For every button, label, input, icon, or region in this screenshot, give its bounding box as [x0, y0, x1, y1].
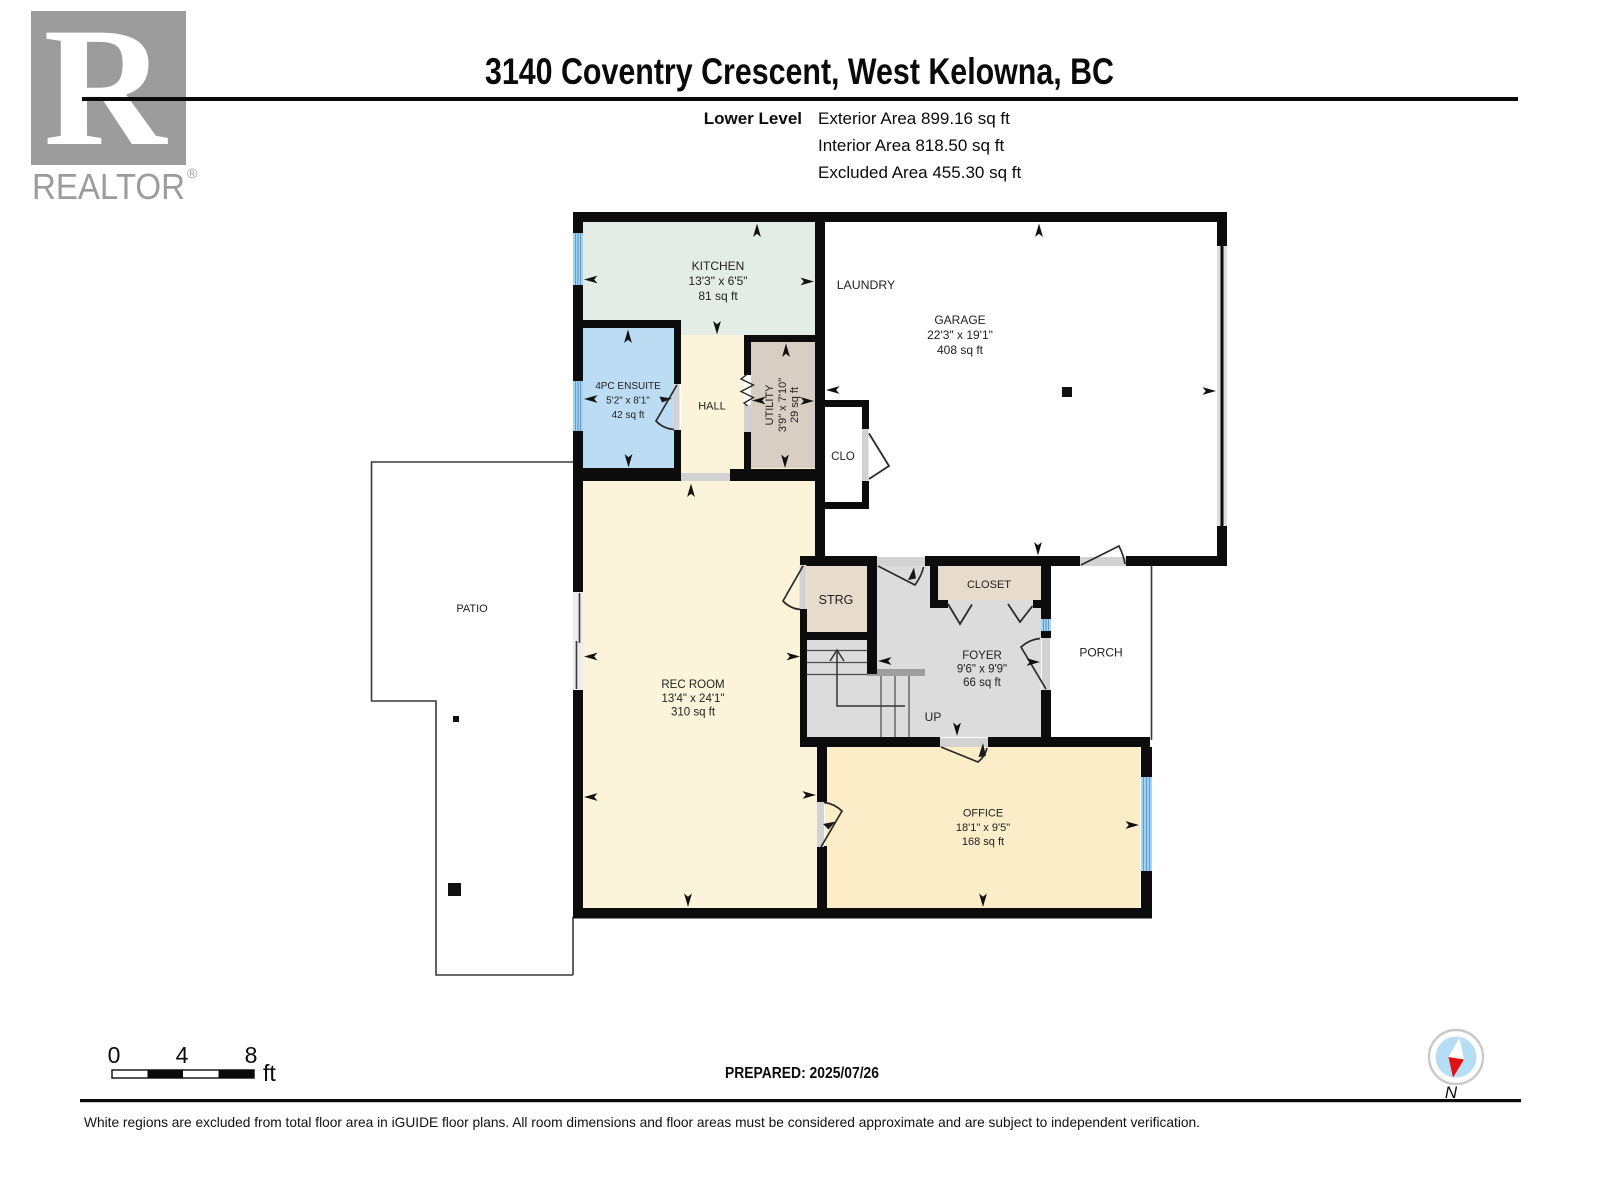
svg-text:PORCH: PORCH — [1079, 646, 1122, 660]
svg-text:HALL: HALL — [698, 401, 726, 413]
svg-text:3140 Coventry Crescent, West K: 3140 Coventry Crescent, West Kelowna, BC — [485, 50, 1114, 92]
svg-text:29 sq ft: 29 sq ft — [789, 387, 801, 423]
svg-text:66 sq ft: 66 sq ft — [963, 677, 1002, 689]
svg-text:CLOSET: CLOSET — [967, 579, 1011, 591]
svg-text:4PC ENSUITE: 4PC ENSUITE — [595, 381, 661, 392]
svg-text:42 sq ft: 42 sq ft — [612, 410, 645, 421]
svg-text:9'6" x 9'9": 9'6" x 9'9" — [957, 664, 1007, 676]
svg-text:CLO: CLO — [831, 451, 855, 463]
svg-text:8: 8 — [245, 1042, 258, 1068]
svg-text:81 sq ft: 81 sq ft — [698, 289, 738, 303]
svg-text:22'3" x 19'1": 22'3" x 19'1" — [927, 328, 993, 342]
svg-text:PREPARED: 2025/07/26: PREPARED: 2025/07/26 — [725, 1065, 879, 1082]
svg-text:ft: ft — [263, 1060, 276, 1086]
svg-text:REC ROOM: REC ROOM — [661, 679, 724, 691]
svg-text:FOYER: FOYER — [962, 650, 1002, 662]
svg-text:Interior Area 818.50 sq ft: Interior Area 818.50 sq ft — [818, 136, 1004, 155]
svg-text:®: ® — [187, 165, 198, 181]
svg-text:5'2" x 8'1": 5'2" x 8'1" — [606, 396, 650, 407]
svg-text:OFFICE: OFFICE — [963, 808, 1003, 820]
svg-text:18'1" x 9'5": 18'1" x 9'5" — [956, 822, 1010, 834]
svg-text:STRG: STRG — [819, 593, 854, 607]
svg-text:UTILITY: UTILITY — [764, 384, 776, 426]
svg-text:310 sq ft: 310 sq ft — [671, 707, 716, 719]
svg-text:13'3" x 6'5": 13'3" x 6'5" — [688, 274, 747, 288]
svg-text:KITCHEN: KITCHEN — [692, 259, 745, 273]
svg-text:White regions are excluded fro: White regions are excluded from total fl… — [84, 1114, 1200, 1130]
svg-text:R: R — [44, 0, 169, 181]
svg-text:PATIO: PATIO — [456, 603, 488, 615]
svg-text:UP: UP — [925, 710, 942, 724]
svg-text:LAUNDRY: LAUNDRY — [837, 278, 896, 292]
svg-text:168 sq ft: 168 sq ft — [962, 836, 1004, 848]
svg-text:3'9" x 7'10": 3'9" x 7'10" — [777, 378, 789, 432]
svg-text:REALTOR: REALTOR — [32, 166, 185, 207]
svg-text:13'4" x 24'1": 13'4" x 24'1" — [661, 693, 724, 705]
svg-text:Lower Level: Lower Level — [704, 109, 802, 128]
svg-text:Exterior Area 899.16 sq ft: Exterior Area 899.16 sq ft — [818, 109, 1010, 128]
svg-text:Excluded Area 455.30 sq ft: Excluded Area 455.30 sq ft — [818, 163, 1021, 182]
svg-text:408 sq ft: 408 sq ft — [937, 343, 984, 357]
svg-text:4: 4 — [176, 1042, 189, 1068]
svg-text:GARAGE: GARAGE — [934, 313, 985, 327]
svg-text:0: 0 — [108, 1042, 121, 1068]
